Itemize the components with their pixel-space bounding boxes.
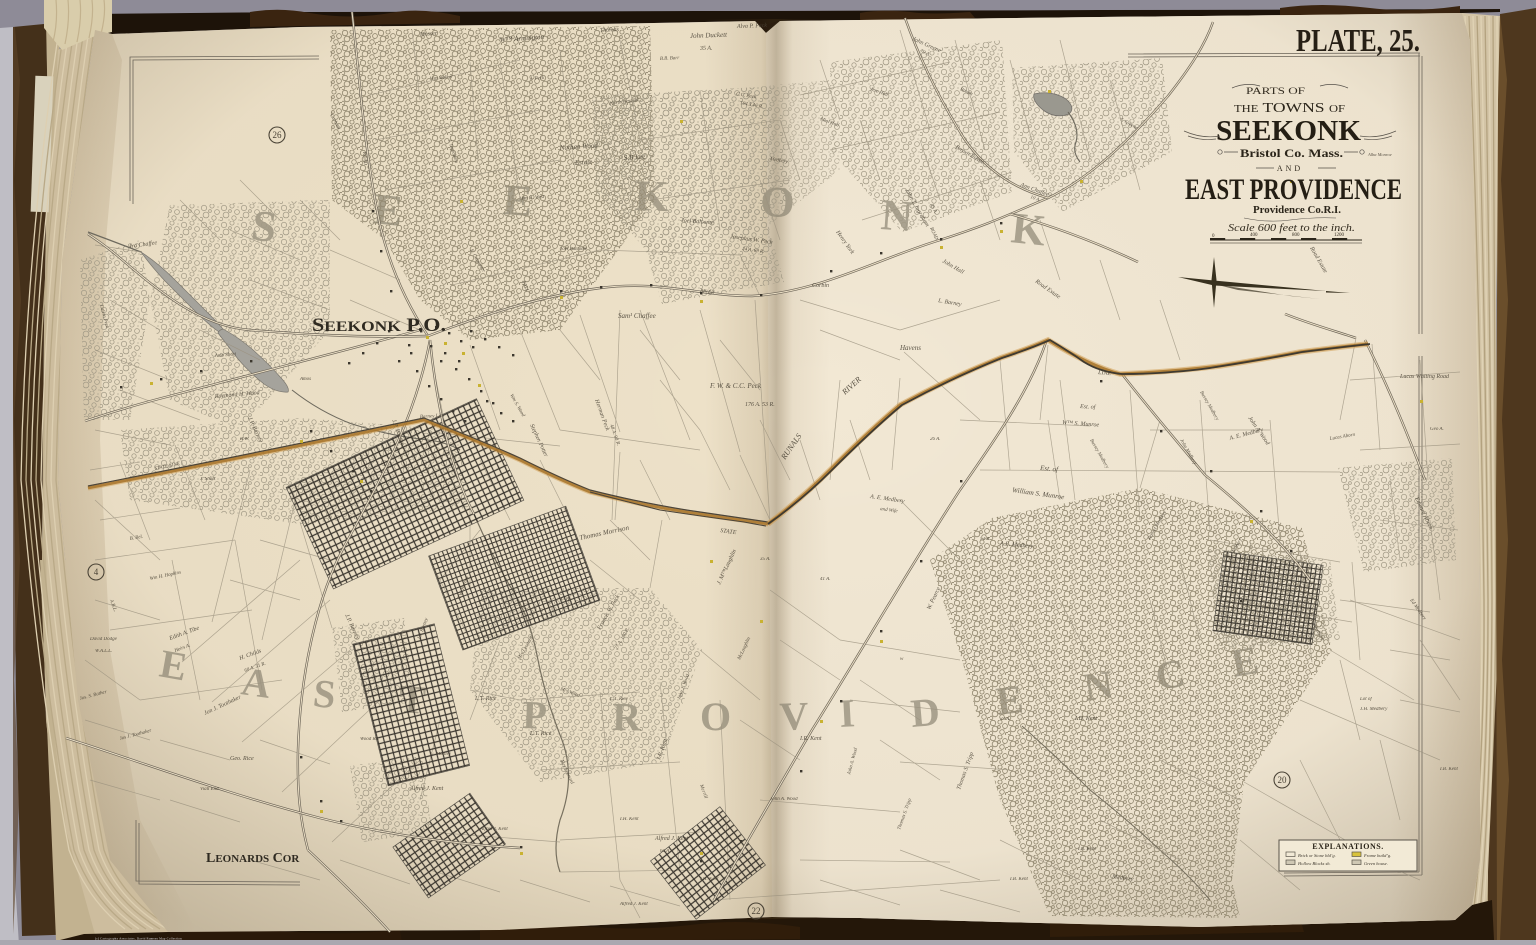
svg-text:Lucas Whiting Road: Lucas Whiting Road xyxy=(1399,374,1450,380)
svg-text:Alfred J. Kent: Alfred J. Kent xyxy=(654,835,689,842)
svg-text:Geo A.: Geo A. xyxy=(1430,427,1444,432)
svg-text:20: 20 xyxy=(1278,775,1288,785)
svg-text:Bristol Co. Mass.: Bristol Co. Mass. xyxy=(1240,146,1343,160)
svg-text:Alva P. Peck: Alva P. Peck xyxy=(736,23,768,30)
svg-text:60 A.: 60 A. xyxy=(660,849,670,854)
svg-text:35 A.: 35 A. xyxy=(699,46,713,52)
svg-text:D: D xyxy=(909,689,942,736)
svg-text:David Dodge: David Dodge xyxy=(89,637,118,642)
svg-text:B.B. Barr: B.B. Barr xyxy=(660,56,680,62)
svg-text:Wood Rd.: Wood Rd. xyxy=(360,737,379,742)
svg-text:35 A.: 35 A. xyxy=(760,557,770,562)
svg-text:41 A.: 41 A. xyxy=(820,577,830,582)
svg-text:Havens: Havens xyxy=(899,344,921,352)
svg-text:53 A.: 53 A. xyxy=(980,537,990,542)
svg-text:F. W. & C.C. Peck: F. W. & C.C. Peck xyxy=(709,382,762,390)
svg-text:26 A.: 26 A. xyxy=(930,437,940,442)
svg-text:I.R. Kent: I.R. Kent xyxy=(799,736,822,742)
svg-text:I.B. Kent: I.B. Kent xyxy=(1077,847,1097,852)
svg-text:O: O xyxy=(700,694,731,739)
svg-text:Alfred J. Kent: Alfred J. Kent xyxy=(619,902,648,907)
svg-text:22: 22 xyxy=(752,906,761,916)
svg-text:G. Manley: G. Manley xyxy=(430,752,452,757)
svg-text:J. Short: J. Short xyxy=(200,477,216,482)
svg-text:PARTS OF: PARTS OF xyxy=(1246,86,1305,96)
svg-text:Sam¹ Chaffee: Sam¹ Chaffee xyxy=(618,312,656,320)
svg-text:Thomas: Thomas xyxy=(600,27,620,34)
svg-text:Joel Balcome: Joel Balcome xyxy=(560,247,588,252)
svg-text:176 A. 53 R.: 176 A. 53 R. xyxy=(745,402,775,408)
svg-text:John A. Wood: John A. Wood xyxy=(770,797,798,802)
svg-text:S: S xyxy=(311,670,338,717)
svg-text:Green house.: Green house. xyxy=(1364,861,1388,866)
svg-text:SEEKONK: SEEKONK xyxy=(1216,116,1361,147)
svg-text:AND: AND xyxy=(1277,164,1303,173)
svg-text:L.T. Rice: L.T. Rice xyxy=(474,696,497,702)
svg-text:I: I xyxy=(838,690,856,736)
svg-text:I.B. Kent: I.B. Kent xyxy=(1009,877,1029,882)
svg-text:Est. of: Est. of xyxy=(1079,403,1097,411)
svg-text:1200: 1200 xyxy=(1334,233,1345,238)
svg-text:V: V xyxy=(779,693,810,739)
svg-text:EAST PROVIDENCE: EAST PROVIDENCE xyxy=(1185,173,1402,206)
svg-text:Viall End.: Viall End. xyxy=(200,787,220,792)
svg-text:John Duckett: John Duckett xyxy=(690,31,728,40)
svg-text:I.H. Kent: I.H. Kent xyxy=(619,817,639,822)
svg-text:4: 4 xyxy=(94,567,99,577)
svg-text:Alfred J. Kent: Alfred J. Kent xyxy=(409,785,444,792)
svg-text:Alfred J. Kent: Alfred J. Kent xyxy=(479,827,508,832)
svg-text:Estate: Estate xyxy=(574,158,593,167)
svg-text:Amos: Amos xyxy=(299,377,311,382)
svg-text:I.H. Kent: I.H. Kent xyxy=(1074,716,1097,722)
svg-text:Providence Co.R.I.: Providence Co.R.I. xyxy=(1253,204,1341,216)
svg-text:Corbin: Corbin xyxy=(812,283,829,289)
svg-text:LINE: LINE xyxy=(1097,370,1112,377)
svg-text:26: 26 xyxy=(273,130,283,140)
svg-text:J.H. Medbery: J.H. Medbery xyxy=(1360,707,1388,712)
svg-text:SEEKONK P.O.: SEEKONK P.O. xyxy=(312,315,446,336)
svg-text:W.A.L.L.: W.A.L.L. xyxy=(95,649,112,654)
svg-text:Geo. Rice: Geo. Rice xyxy=(230,756,254,762)
svg-text:400: 400 xyxy=(1250,233,1258,238)
svg-text:J. Peck: J. Peck xyxy=(530,76,546,82)
svg-text:B.W.: B.W. xyxy=(240,437,249,442)
svg-text:Frame build’g.: Frame build’g. xyxy=(1363,853,1391,858)
svg-text:S.B.Lee: S.B.Lee xyxy=(624,153,646,162)
svg-text:33 A.: 33 A. xyxy=(560,597,570,602)
svg-text:EXPLANATIONS.: EXPLANATIONS. xyxy=(1312,842,1383,851)
svg-text:Brick or Stone bld’g.: Brick or Stone bld’g. xyxy=(1298,853,1336,858)
svg-text:L.T. Rice: L.T. Rice xyxy=(529,731,552,737)
svg-text:THE TOWNS OF: THE TOWNS OF xyxy=(1234,101,1346,116)
svg-text:I.H. Kent: I.H. Kent xyxy=(699,877,719,882)
svg-text:L.T. Rice: L.T. Rice xyxy=(609,697,629,702)
svg-text:Lot of: Lot of xyxy=(1359,697,1372,702)
svg-text:PLATE, 25.: PLATE, 25. xyxy=(1296,22,1420,58)
svg-text:I.B. Kent: I.B. Kent xyxy=(1439,767,1459,772)
svg-text:Alba Monroe: Alba Monroe xyxy=(1367,152,1392,157)
svg-text:LEONARDS COR: LEONARDS COR xyxy=(206,851,300,866)
svg-text:800: 800 xyxy=(1292,233,1300,238)
svg-text:Hollow Blocks sh.: Hollow Blocks sh. xyxy=(1297,861,1331,866)
svg-text:23 A.: 23 A. xyxy=(1000,717,1010,722)
